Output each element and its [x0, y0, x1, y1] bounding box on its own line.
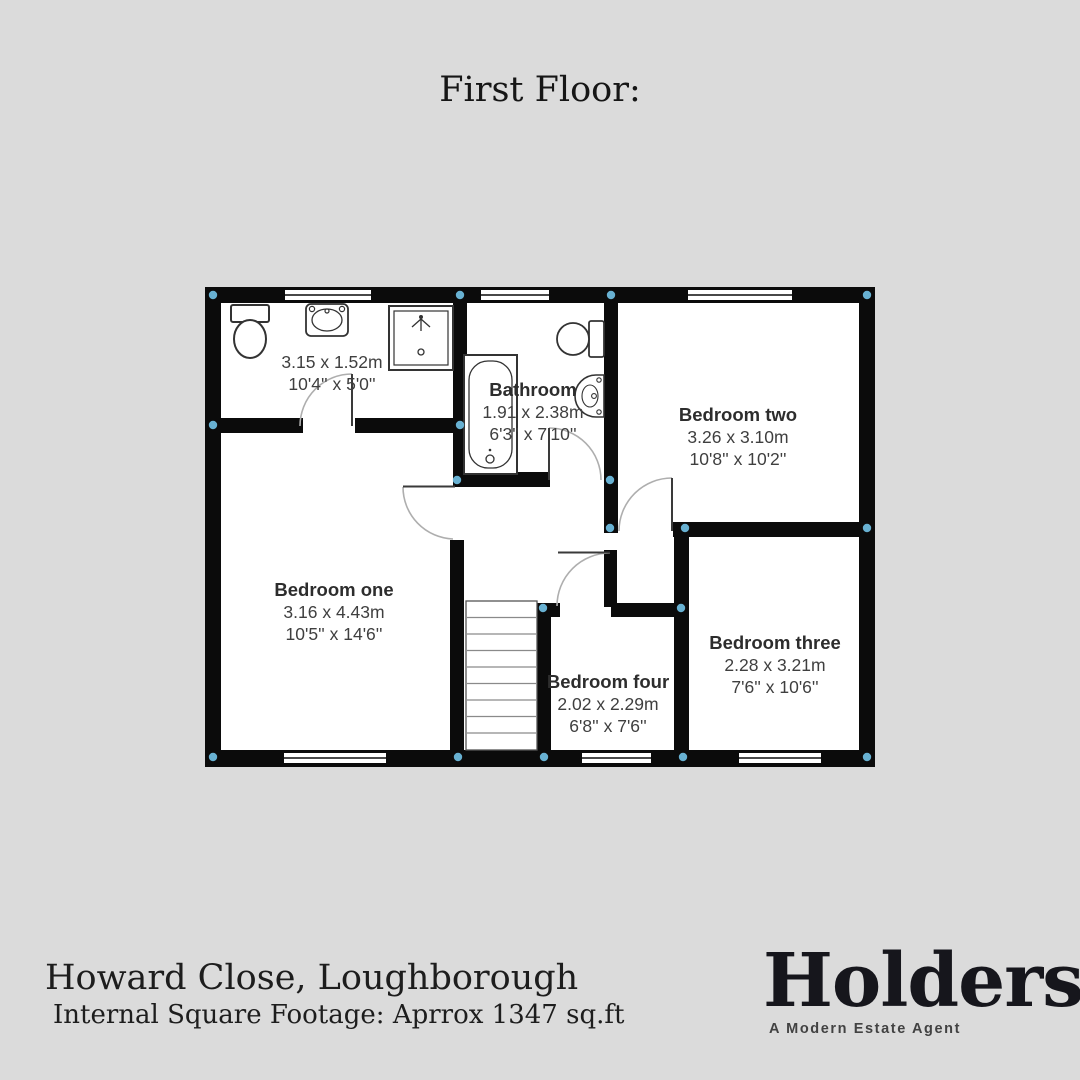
- junction-marker: [863, 753, 871, 761]
- junction-marker: [453, 476, 461, 484]
- room-dims-ft: 6'3'' x 7'10'': [482, 423, 583, 445]
- room-dims-m: 3.26 x 3.10m: [679, 426, 797, 448]
- junction-marker: [539, 604, 547, 612]
- junction-marker: [209, 421, 217, 429]
- junction-marker: [863, 291, 871, 299]
- junction-marker: [681, 524, 689, 532]
- window: [581, 752, 652, 764]
- junction-marker: [606, 524, 614, 532]
- sink-icon: [306, 304, 348, 336]
- junction-marker: [677, 604, 685, 612]
- room-name: Bedroom three: [709, 632, 841, 654]
- window: [687, 289, 793, 301]
- room-dims-m: 2.02 x 2.29m: [547, 693, 669, 715]
- page: First Floor:: [0, 0, 1080, 1080]
- room-dims-m: 3.15 x 1.52m: [281, 351, 382, 373]
- window: [480, 289, 550, 301]
- room-dims-m: 2.28 x 3.21m: [709, 654, 841, 676]
- junction-marker: [607, 291, 615, 299]
- wall-bed4-top-right: [611, 603, 675, 617]
- brand-tagline: A Modern Estate Agent: [769, 1021, 961, 1037]
- junction-marker: [456, 291, 464, 299]
- room-dims-ft: 7'6'' x 10'6'': [709, 676, 841, 698]
- toilet-icon: [231, 305, 269, 358]
- window: [284, 289, 372, 301]
- room-dims-ft: 10'8'' x 10'2'': [679, 448, 797, 470]
- floor-plan: [0, 0, 1080, 1080]
- junction-marker: [456, 421, 464, 429]
- junction-marker: [863, 524, 871, 532]
- room-name: Bedroom one: [274, 579, 393, 601]
- room-label-bedroom-one: Bedroom one 3.16 x 4.43m 10'5'' x 14'6'': [274, 579, 393, 645]
- property-address: Howard Close, Loughborough: [45, 958, 578, 998]
- wall-showerroom-bottom-right: [355, 418, 466, 433]
- room-name: Bedroom two: [679, 404, 797, 426]
- room-label-bedroom-four: Bedroom four 2.02 x 2.29m 6'8'' x 7'6'': [547, 671, 669, 737]
- room-label-bedroom-three: Bedroom three 2.28 x 3.21m 7'6'' x 10'6'…: [709, 632, 841, 698]
- toilet-icon: [557, 321, 604, 357]
- room-dims-m: 3.16 x 4.43m: [274, 601, 393, 623]
- window: [738, 752, 822, 764]
- wall-bed1-right: [450, 540, 464, 765]
- wall-bed3-left: [674, 537, 689, 765]
- wall-showerroom-bottom-left: [220, 418, 303, 433]
- room-dims-ft: 6'8'' x 7'6'': [547, 715, 669, 737]
- room-name: Bedroom four: [547, 671, 669, 693]
- room-dims-m: 1.91 x 2.38m: [482, 401, 583, 423]
- junction-marker: [679, 753, 687, 761]
- room-name: Bathroom: [482, 379, 583, 401]
- junction-marker: [454, 753, 462, 761]
- wall-vestibule: [604, 550, 617, 607]
- wall-bed2-bottom: [673, 522, 875, 537]
- room-dims-ft: 10'5'' x 14'6'': [274, 623, 393, 645]
- wall-left: [205, 287, 221, 767]
- square-footage: Internal Square Footage: Aprrox 1347 sq.…: [53, 1000, 624, 1030]
- room-label-bathroom: Bathroom 1.91 x 2.38m 6'3'' x 7'10'': [482, 379, 583, 445]
- junction-marker: [209, 753, 217, 761]
- junction-marker: [606, 476, 614, 484]
- room-dims-ft: 10'4'' x 5'0'': [281, 373, 382, 395]
- junction-marker: [209, 291, 217, 299]
- junction-marker: [540, 753, 548, 761]
- room-label-shower-room: 3.15 x 1.52m 10'4'' x 5'0'': [281, 351, 382, 395]
- stairs: [466, 601, 537, 750]
- wall-bath-bed2-divider: [604, 302, 618, 533]
- brand-logo: Holders: [763, 938, 1080, 1024]
- room-label-bedroom-two: Bedroom two 3.26 x 3.10m 10'8'' x 10'2'': [679, 404, 797, 470]
- window: [283, 752, 387, 764]
- shower-icon: [389, 306, 453, 370]
